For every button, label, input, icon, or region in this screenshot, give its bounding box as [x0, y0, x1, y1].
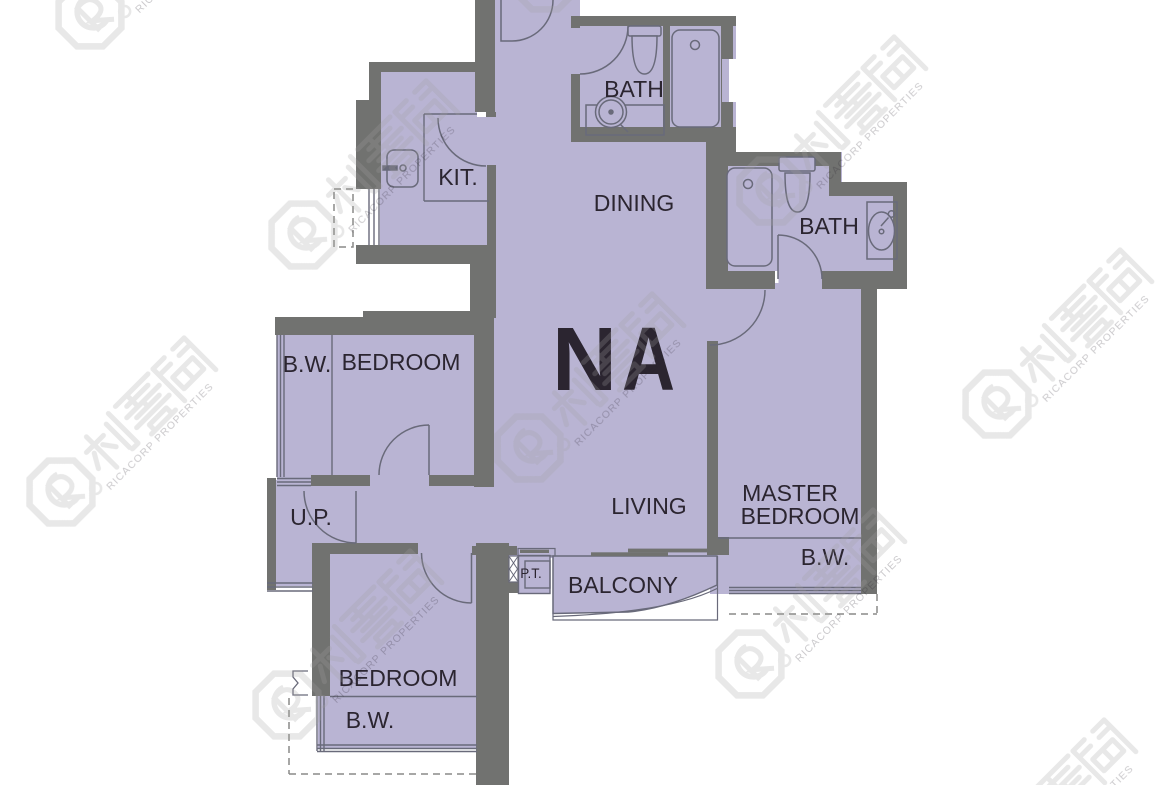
- svg-text:BEDROOM: BEDROOM: [342, 349, 461, 375]
- svg-text:KIT.: KIT.: [438, 164, 478, 190]
- svg-text:B.W.: B.W.: [283, 351, 332, 377]
- svg-text:BEDROOM: BEDROOM: [741, 503, 860, 529]
- svg-text:B.W.: B.W.: [346, 707, 395, 733]
- svg-text:DINING: DINING: [594, 190, 675, 216]
- svg-text:BATH: BATH: [799, 213, 859, 239]
- svg-text:U.P.: U.P.: [290, 504, 332, 530]
- svg-text:P.T.: P.T.: [520, 566, 542, 581]
- svg-text:BATH: BATH: [604, 76, 664, 102]
- svg-text:BALCONY: BALCONY: [568, 572, 678, 598]
- svg-text:LIVING: LIVING: [611, 493, 686, 519]
